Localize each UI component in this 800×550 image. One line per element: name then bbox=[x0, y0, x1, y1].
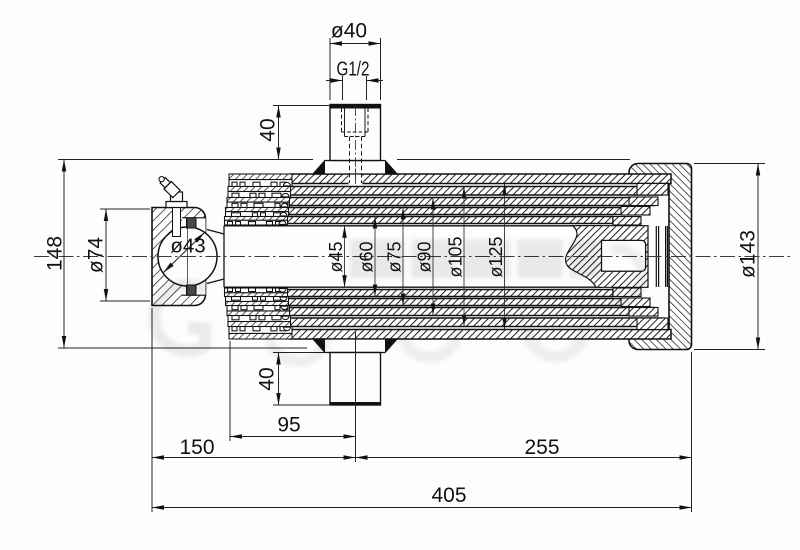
svg-text:ø43: ø43 bbox=[170, 234, 205, 257]
svg-text:ø143: ø143 bbox=[737, 230, 760, 278]
svg-text:95: 95 bbox=[277, 414, 300, 437]
svg-text:40: 40 bbox=[256, 367, 279, 390]
svg-text:G1/2: G1/2 bbox=[337, 59, 370, 81]
svg-text:ø74: ø74 bbox=[85, 237, 108, 274]
svg-text:255: 255 bbox=[524, 436, 559, 459]
svg-text:40: 40 bbox=[257, 118, 280, 141]
svg-text:ø40: ø40 bbox=[331, 20, 367, 43]
svg-text:ø45: ø45 bbox=[326, 241, 346, 272]
svg-text:150: 150 bbox=[179, 436, 214, 459]
svg-text:148: 148 bbox=[44, 236, 67, 271]
svg-text:405: 405 bbox=[431, 484, 466, 507]
